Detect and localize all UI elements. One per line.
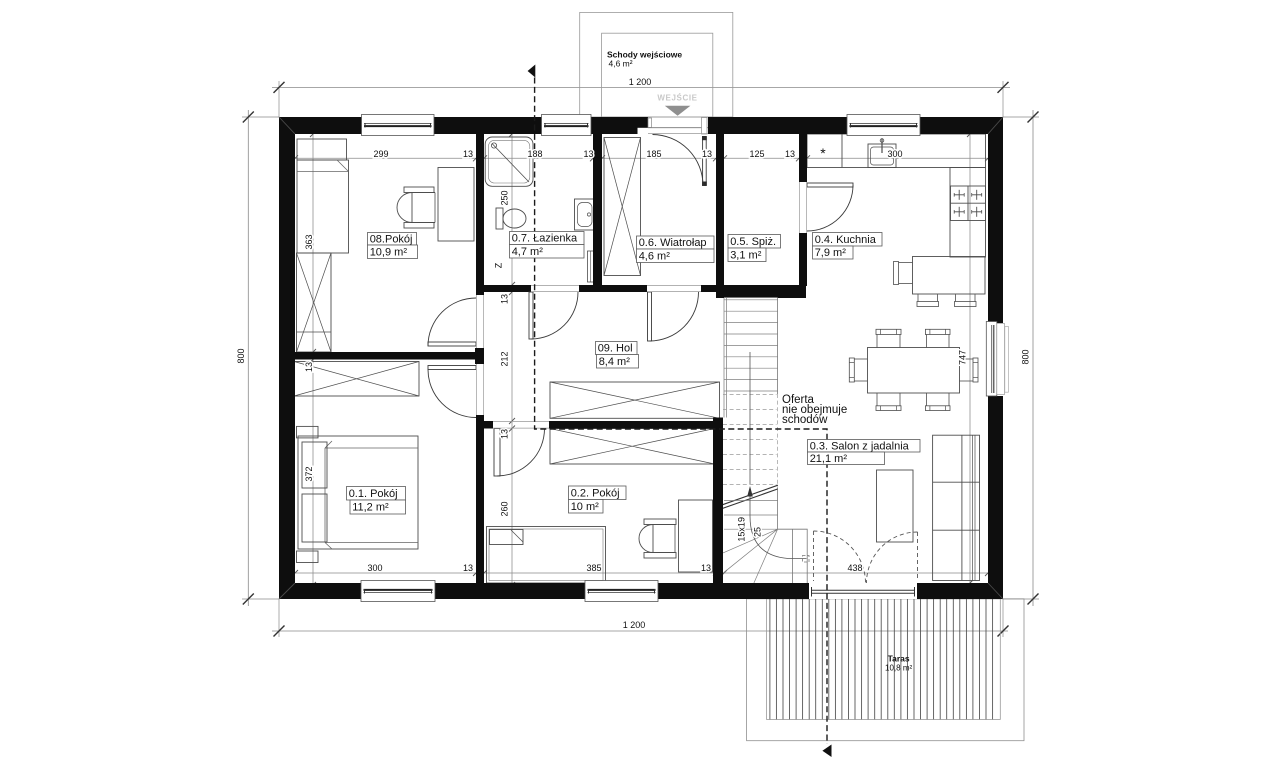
svg-text:0.3. Salon z jadalnia: 0.3. Salon z jadalnia <box>810 440 910 452</box>
svg-text:800: 800 <box>1021 349 1031 364</box>
svg-text:*: * <box>820 145 826 161</box>
svg-text:4,6 m²: 4,6 m² <box>639 250 671 262</box>
svg-text:11,2 m²: 11,2 m² <box>352 502 389 514</box>
svg-text:1 200: 1 200 <box>629 77 652 87</box>
svg-text:13: 13 <box>304 362 314 372</box>
svg-text:363: 363 <box>304 234 314 249</box>
svg-text:13: 13 <box>463 149 473 159</box>
svg-text:10 m²: 10 m² <box>571 501 599 513</box>
svg-text:25: 25 <box>753 527 763 537</box>
svg-text:08.Pokój: 08.Pokój <box>370 233 413 245</box>
svg-text:3,1 m²: 3,1 m² <box>730 249 762 261</box>
svg-text:09. Hol: 09. Hol <box>598 343 633 355</box>
svg-text:13: 13 <box>463 563 473 573</box>
svg-text:Taras: Taras <box>888 654 910 664</box>
svg-text:13: 13 <box>701 563 711 573</box>
svg-text:300: 300 <box>367 563 382 573</box>
svg-text:125: 125 <box>749 149 764 159</box>
svg-text:299: 299 <box>373 149 388 159</box>
svg-text:13: 13 <box>500 294 510 304</box>
svg-text:385: 385 <box>586 563 601 573</box>
svg-text:260: 260 <box>500 501 510 516</box>
svg-text:372: 372 <box>304 466 314 481</box>
svg-text:WEJŚCIE: WEJŚCIE <box>657 94 697 103</box>
svg-text:13: 13 <box>500 429 510 439</box>
svg-text:212: 212 <box>500 351 510 366</box>
svg-text:300: 300 <box>887 149 902 159</box>
svg-text:0.4. Kuchnia: 0.4. Kuchnia <box>815 234 877 246</box>
svg-text:0.5. Spiż.: 0.5. Spiż. <box>730 236 776 248</box>
svg-text:15x19: 15x19 <box>736 517 746 542</box>
svg-text:438: 438 <box>847 563 862 573</box>
svg-text:185: 185 <box>646 149 661 159</box>
svg-text:21,1 m²: 21,1 m² <box>810 453 848 465</box>
svg-text:10,8 m²: 10,8 m² <box>885 664 912 673</box>
svg-text:800: 800 <box>236 348 246 363</box>
svg-text:7,9 m²: 7,9 m² <box>815 247 847 259</box>
svg-text:schodów: schodów <box>782 414 828 426</box>
svg-text:13: 13 <box>785 149 795 159</box>
svg-text:0.1. Pokój: 0.1. Pokój <box>349 488 398 500</box>
svg-text:1 200: 1 200 <box>623 620 646 630</box>
svg-text:0.2. Pokój: 0.2. Pokój <box>571 487 620 499</box>
svg-text:0.6. Wiatrołap: 0.6. Wiatrołap <box>639 237 707 249</box>
svg-text:188: 188 <box>527 149 542 159</box>
svg-text:13: 13 <box>583 149 593 159</box>
svg-text:250: 250 <box>500 190 510 205</box>
svg-text:13: 13 <box>702 149 712 159</box>
svg-text:4,6 m²: 4,6 m² <box>609 59 633 69</box>
svg-text:Z: Z <box>494 262 504 268</box>
svg-text:8,4 m²: 8,4 m² <box>599 356 631 368</box>
svg-text:10,9 m²: 10,9 m² <box>370 246 408 258</box>
svg-text:747: 747 <box>958 350 968 365</box>
svg-text:4,7 m²: 4,7 m² <box>512 246 544 258</box>
svg-text:0.7. Łazienka: 0.7. Łazienka <box>512 233 578 245</box>
